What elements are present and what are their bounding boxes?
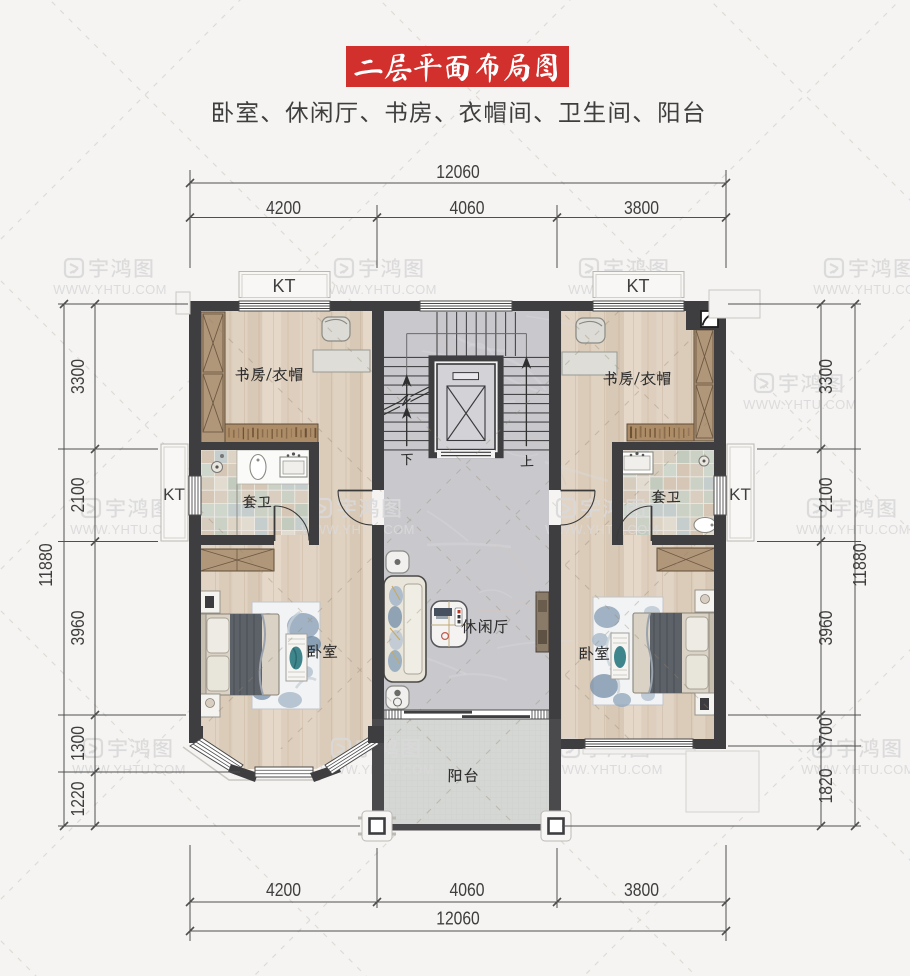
svg-text:3800: 3800 <box>624 880 659 900</box>
svg-text:KT: KT <box>626 276 649 296</box>
svg-text:1820: 1820 <box>816 769 836 804</box>
svg-text:4200: 4200 <box>266 198 301 218</box>
svg-text:3960: 3960 <box>68 611 88 646</box>
svg-text:1220: 1220 <box>68 782 88 817</box>
svg-text:700: 700 <box>816 717 836 744</box>
svg-text:3300: 3300 <box>68 359 88 394</box>
svg-text:1300: 1300 <box>68 726 88 761</box>
svg-text:2100: 2100 <box>816 478 836 513</box>
svg-text:4200: 4200 <box>266 880 301 900</box>
svg-text:4060: 4060 <box>450 198 485 218</box>
svg-text:3300: 3300 <box>816 359 836 394</box>
svg-text:2100: 2100 <box>68 478 88 513</box>
svg-text:KT: KT <box>272 276 295 296</box>
svg-text:11880: 11880 <box>850 543 870 587</box>
svg-text:4060: 4060 <box>450 880 485 900</box>
svg-text:3960: 3960 <box>816 611 836 646</box>
svg-text:12060: 12060 <box>436 162 480 182</box>
svg-text:12060: 12060 <box>436 909 480 929</box>
svg-text:11880: 11880 <box>36 543 56 587</box>
svg-text:KT: KT <box>729 485 751 504</box>
svg-text:3800: 3800 <box>624 198 659 218</box>
svg-text:KT: KT <box>163 485 185 504</box>
